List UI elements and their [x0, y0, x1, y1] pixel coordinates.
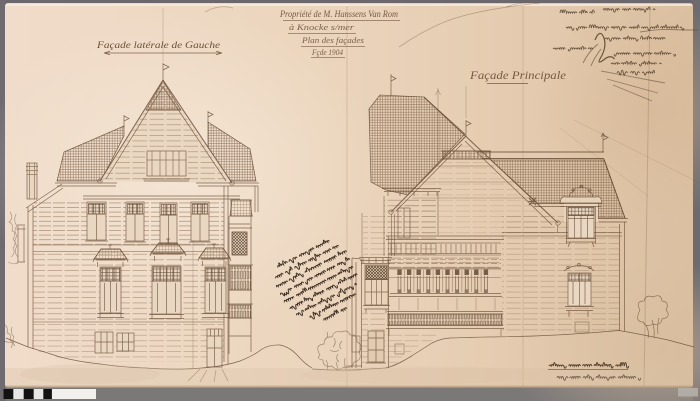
svg-text:Propriété de M. Hanssens Van R: Propriété de M. Hanssens Van Rom [279, 9, 398, 19]
svg-text:Façade Principale: Façade Principale [469, 70, 566, 82]
svg-text:Façade latérale de Gauche: Façade latérale de Gauche [96, 41, 220, 51]
svg-text:Plan des façades: Plan des façades [301, 35, 365, 45]
svg-text:à Knocke s/mer: à Knocke s/mer [289, 22, 355, 32]
svg-text:Fçde 1904: Fçde 1904 [311, 47, 343, 57]
